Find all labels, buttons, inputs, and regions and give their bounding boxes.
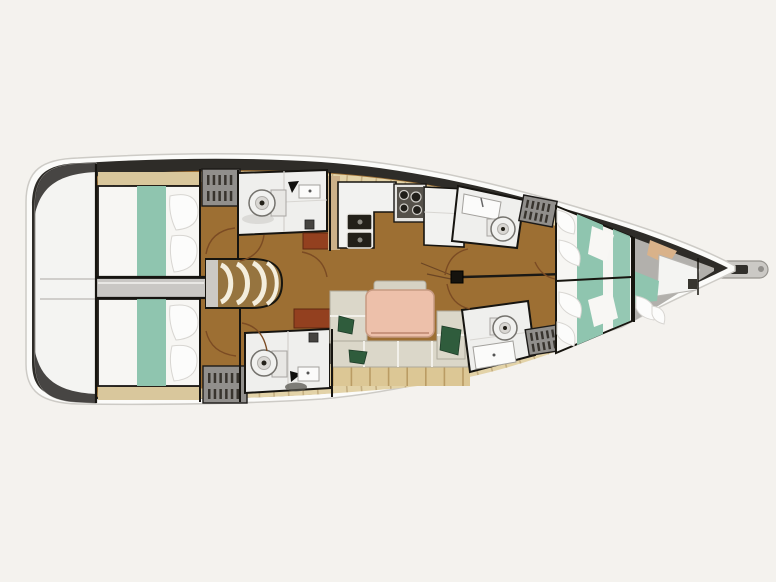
mast-icon (451, 271, 463, 283)
wardrobe-forward-port (519, 195, 557, 227)
stern-platform (35, 163, 96, 403)
sink-drain (358, 238, 363, 243)
cabinet (294, 309, 332, 328)
faucet-dot (307, 372, 310, 375)
steps-landing (206, 260, 218, 307)
burner (400, 191, 409, 200)
shelf-strip (98, 172, 200, 185)
floor-shadow (285, 383, 307, 392)
toilet-drain (262, 361, 267, 366)
floor-drain (305, 220, 314, 229)
engine-box-strip (96, 278, 206, 298)
toilet-drain (501, 227, 505, 231)
burner (413, 206, 422, 215)
toilet-drain (503, 326, 507, 330)
burner (400, 204, 408, 212)
wardrobe-aft-port (202, 169, 240, 206)
bed-runner (137, 186, 166, 277)
aft-port-cabin (98, 172, 200, 277)
aft-starboard-cabin (98, 299, 200, 400)
shelf-strip (98, 387, 200, 400)
plant-icon (349, 350, 367, 364)
pillow-icon (652, 306, 665, 324)
bed-runner (137, 299, 166, 386)
bowsprit-tip (758, 266, 764, 272)
plant-icon (440, 326, 461, 355)
sink-drain (358, 220, 363, 225)
floorplan-canvas (0, 0, 776, 582)
faucet-dot (493, 354, 496, 357)
transom-deck (35, 163, 96, 403)
burner (411, 192, 421, 202)
wardrobe-icon (519, 195, 557, 227)
table-icon (366, 290, 434, 337)
sink-icon (688, 279, 697, 289)
faucet-dot (309, 190, 312, 193)
floor-drain (309, 333, 318, 342)
toilet-drain (260, 201, 265, 206)
yacht-floorplan-image (0, 0, 776, 582)
